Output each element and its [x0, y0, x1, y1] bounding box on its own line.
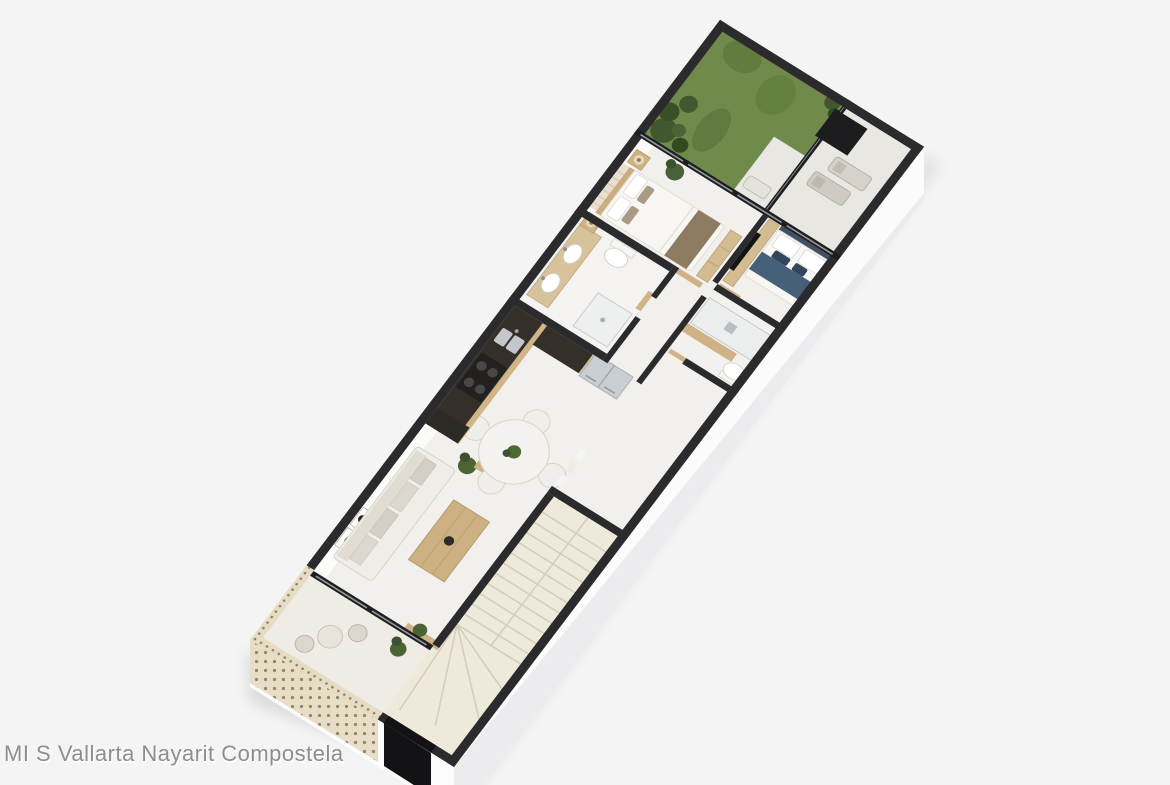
watermark-text: MI S Vallarta Nayarit Compostela: [4, 741, 344, 767]
floorplan-stage: [0, 0, 1170, 785]
floorplan-3d-render: [0, 0, 1170, 785]
screenshot-root: { "watermark": { "text": "MI S Vallarta …: [0, 0, 1170, 785]
floorplan-plan-group: [250, 20, 924, 767]
